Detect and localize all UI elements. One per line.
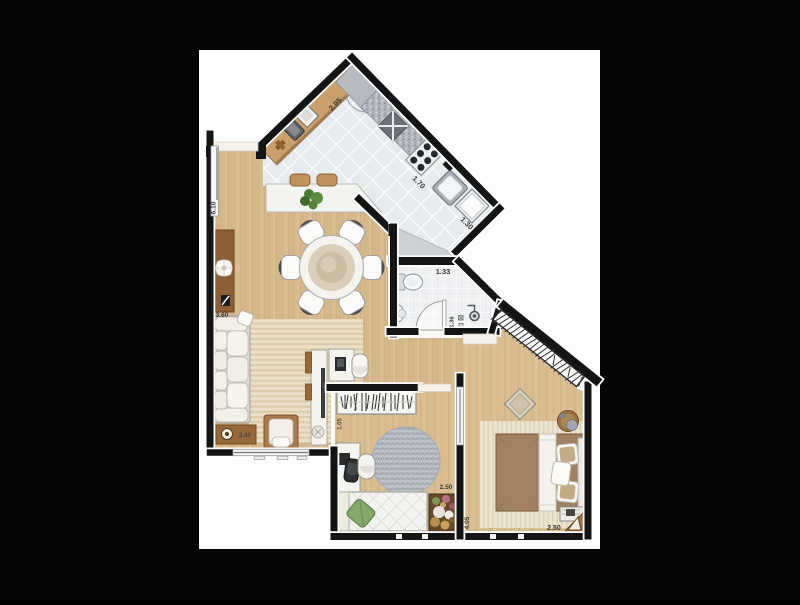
svg-text:4.05: 4.05 [464, 516, 471, 529]
svg-text:2.50: 2.50 [547, 525, 561, 532]
svg-text:2.50: 2.50 [440, 484, 453, 491]
svg-text:1.33: 1.33 [436, 267, 451, 276]
svg-text:3.60: 3.60 [216, 312, 229, 319]
svg-text:6.10: 6.10 [211, 201, 218, 214]
svg-text:2.40: 2.40 [239, 433, 251, 439]
svg-text:1.36: 1.36 [450, 316, 456, 328]
svg-text:1.05: 1.05 [338, 418, 344, 430]
